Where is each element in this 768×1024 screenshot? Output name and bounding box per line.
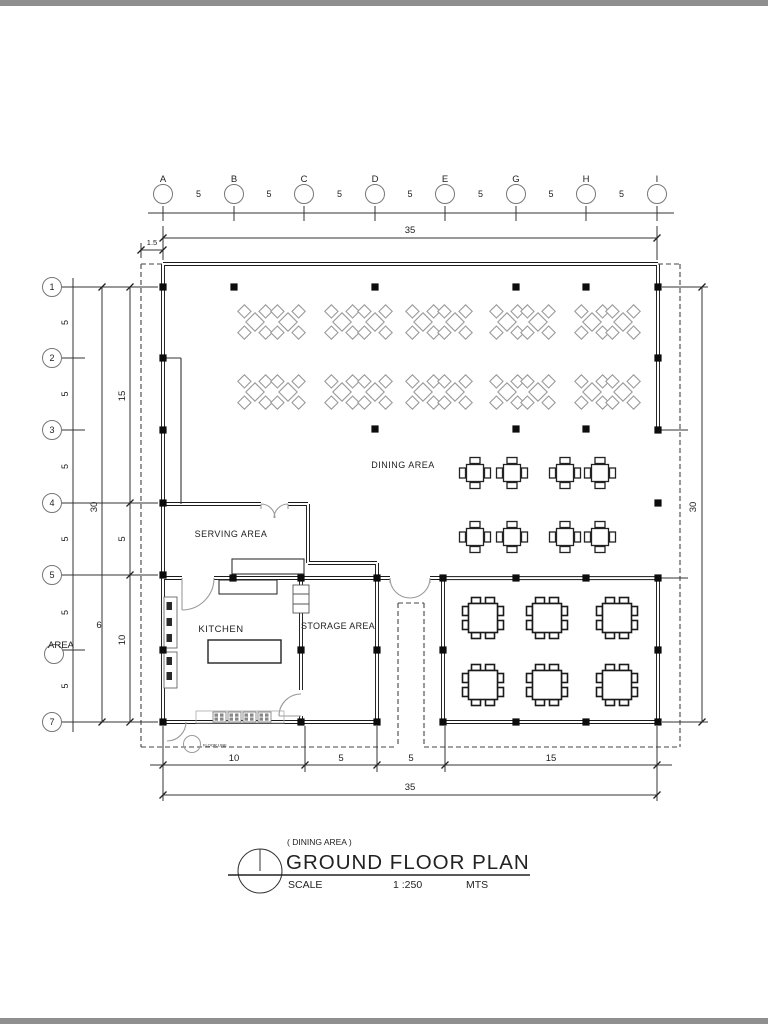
structural-column [654,426,661,433]
serving-door-arcs [261,504,288,518]
stove-burner [215,714,219,717]
structural-column [159,718,166,725]
title-area-note: ( DINING AREA ) [287,837,352,847]
banquet-table-8seat [463,598,504,639]
dining-table-diagonal [606,305,640,339]
grid-columns-header: A5B5C5D5E5G5H5I [154,174,667,221]
grid-row-label: 1 [49,282,54,292]
dining-table-diagonal [490,375,524,409]
stove-burner [235,714,239,717]
dimension-lines [62,213,708,801]
dining-table-diagonal [325,305,359,339]
storage-door-arc [279,694,301,716]
structural-column [512,718,519,725]
dining-table-diagonal [358,305,392,339]
dining-table-diagonal [438,305,472,339]
stove-burner [245,714,249,717]
structural-column [654,646,661,653]
dining-table-diagonal [325,375,359,409]
kitchen-pass-counter [219,580,277,594]
floor-plan-page: FLOOR LINE A5B5C5D5E5G5H5I 152535455557 … [0,0,768,1024]
grid-column-label: E [442,174,448,185]
dining-table-4seat [585,458,616,489]
dining-area-label: DINING AREA [371,460,435,470]
grid-column-bubble [366,185,385,204]
serving-area-label: SERVING AREA [195,529,268,539]
structural-column [439,574,446,581]
grid-column-label: H [583,174,590,185]
structural-column [512,283,519,290]
structural-column [159,354,166,361]
structural-column [439,718,446,725]
bottom-total-dim: 35 [405,782,416,793]
stove-burner [220,714,224,717]
structural-column [297,646,304,653]
structural-column [582,425,589,432]
structural-column [439,646,446,653]
structural-column [159,499,166,506]
storage-shelf [293,585,309,613]
stray-row6-number: 6 [96,620,101,631]
entry-walkway-dashed [398,603,424,747]
column-bay-dimension: 5 [548,189,553,199]
stove-burner [220,718,224,721]
banquet-table-8seat [527,598,568,639]
row-bay-dimension: 5 [60,320,70,325]
dining-table-diagonal [521,375,555,409]
dining-table-diagonal [575,375,609,409]
dining-table-diagonal [406,305,440,339]
drawing-title: GROUND FLOOR PLAN [286,851,530,874]
structural-column [230,283,237,290]
grid-column-bubble [577,185,596,204]
column-bay-dimension: 5 [478,189,483,199]
grid-row-label: 4 [49,498,54,508]
grid-column-bubble [507,185,526,204]
kitchen-island-counter [208,640,281,663]
kitchen-label: KITCHEN [198,624,243,635]
structural-column [582,718,589,725]
structural-column [159,283,166,290]
grid-column-label: C [301,174,308,185]
dining-table-diagonal [521,305,555,339]
structural-column [512,574,519,581]
left-outer-dim: 30 [89,502,100,513]
serving-counter [232,559,304,574]
grid-column-label: G [512,174,519,185]
left-inner-dim-15: 15 [117,391,128,402]
structural-column [654,354,661,361]
bottom-seg-5b: 5 [408,753,413,764]
row-bay-dimension: 5 [60,464,70,469]
title-block: ( DINING AREA ) GROUND FLOOR PLAN SCALE … [228,837,530,893]
dining-table-4seat [460,522,491,553]
column-bay-dimension: 5 [619,189,624,199]
bottom-seg-15: 15 [546,753,557,764]
dimension-ticks [99,235,706,799]
stove-burner [260,714,264,717]
dining-table-4seat [497,522,528,553]
grid-column-bubble [648,185,667,204]
stove-burner [250,714,254,717]
left-inner-dim-10: 10 [117,635,128,646]
structural-column [654,283,661,290]
row-bay-dimension: 5 [60,536,70,541]
column-bay-dimension: 5 [266,189,271,199]
stove-burner [215,718,219,721]
grid-column-label: B [231,174,237,185]
dining-table-4seat [585,522,616,553]
structural-column [654,499,661,506]
floor-level-marker: FLOOR LINE [184,736,228,753]
units-label: MTS [466,879,488,891]
banquet-table-8seat [597,665,638,706]
grid-column-bubble [295,185,314,204]
grid-column-label: I [656,174,659,185]
left-inner-dim-5: 5 [117,536,128,541]
stove-burner [265,714,269,717]
grid-row-label: 7 [49,717,54,727]
structural-column [371,283,378,290]
grid-row-label: 3 [49,425,54,435]
kitchen-wall-equipment [164,597,177,688]
structural-column [159,646,166,653]
dining-table-diagonal [358,375,392,409]
structural-column [159,571,166,578]
grid-row-label: 2 [49,353,54,363]
dining-table-4seat [497,458,528,489]
structural-column [229,574,236,581]
exterior-door-arc [167,722,186,741]
top-total-dim: 35 [405,225,416,236]
dining-table-diagonal [490,305,524,339]
banquet-table-8seat [527,665,568,706]
grid-row-label: 5 [49,570,54,580]
dining-table-diagonal [438,375,472,409]
kitchen-door-arc [182,578,214,610]
structural-column [373,574,380,581]
row-bay-dimension: 5 [60,391,70,396]
dining-table-4seat [550,522,581,553]
storage-area-label: STORAGE AREA [301,621,375,631]
dining-table-diagonal [575,305,609,339]
column-bay-dimension: 5 [407,189,412,199]
structural-column [582,283,589,290]
dining-table-diagonal [606,375,640,409]
banquet-table-8seat [597,598,638,639]
structural-column [654,718,661,725]
grid-column-label: A [160,174,167,185]
grid-column-bubble [154,185,173,204]
dining-table-diagonal [238,375,272,409]
grid-column-bubble [225,185,244,204]
floor-plan-drawing: FLOOR LINE A5B5C5D5E5G5H5I 152535455557 … [0,0,768,1024]
structural-column [373,646,380,653]
structural-column [654,574,661,581]
column-bay-dimension: 5 [337,189,342,199]
structural-column [371,425,378,432]
stove-burner [245,718,249,721]
bottom-seg-5a: 5 [338,753,343,764]
stove-burner [230,714,234,717]
column-bay-dimension: 5 [196,189,201,199]
row-bay-dimension: 5 [60,683,70,688]
dining-table-diagonal [271,305,305,339]
row-bay-dimension: 5 [60,610,70,615]
stove-burner [250,718,254,721]
dining-table-diagonal [271,375,305,409]
structural-column [373,718,380,725]
grid-column-label: D [372,174,379,185]
stove-burner [260,718,264,721]
scale-label: SCALE [288,879,322,891]
dining-table-diagonal [238,305,272,339]
banquet-table-8seat [463,665,504,706]
doors [167,504,430,741]
stove-burner [235,718,239,721]
grid-column-bubble [436,185,455,204]
left-extension-lines [62,287,158,722]
structural-column [297,718,304,725]
structural-column [582,574,589,581]
bottom-seg-10: 10 [229,753,240,764]
stove-burner [265,718,269,721]
dining-table-4seat [460,458,491,489]
entry-double-door-arcs [390,578,430,598]
floor-marker-note: FLOOR LINE [203,743,227,748]
dining-table-diagonal [406,375,440,409]
right-total-dim: 30 [688,502,699,513]
scale-value: 1 :250 [393,879,422,891]
grid-rows-header: 152535455557 [43,278,85,732]
structural-column [512,425,519,432]
dining-table-4seat [550,458,581,489]
right-dim-line [660,287,708,722]
structural-column [297,574,304,581]
bottom-dim-line-1 [150,726,672,772]
eave-offset-dim: 1.5 [147,238,157,247]
stray-area-word: AREA [48,640,75,651]
stove-burner [230,718,234,721]
structural-column [159,426,166,433]
